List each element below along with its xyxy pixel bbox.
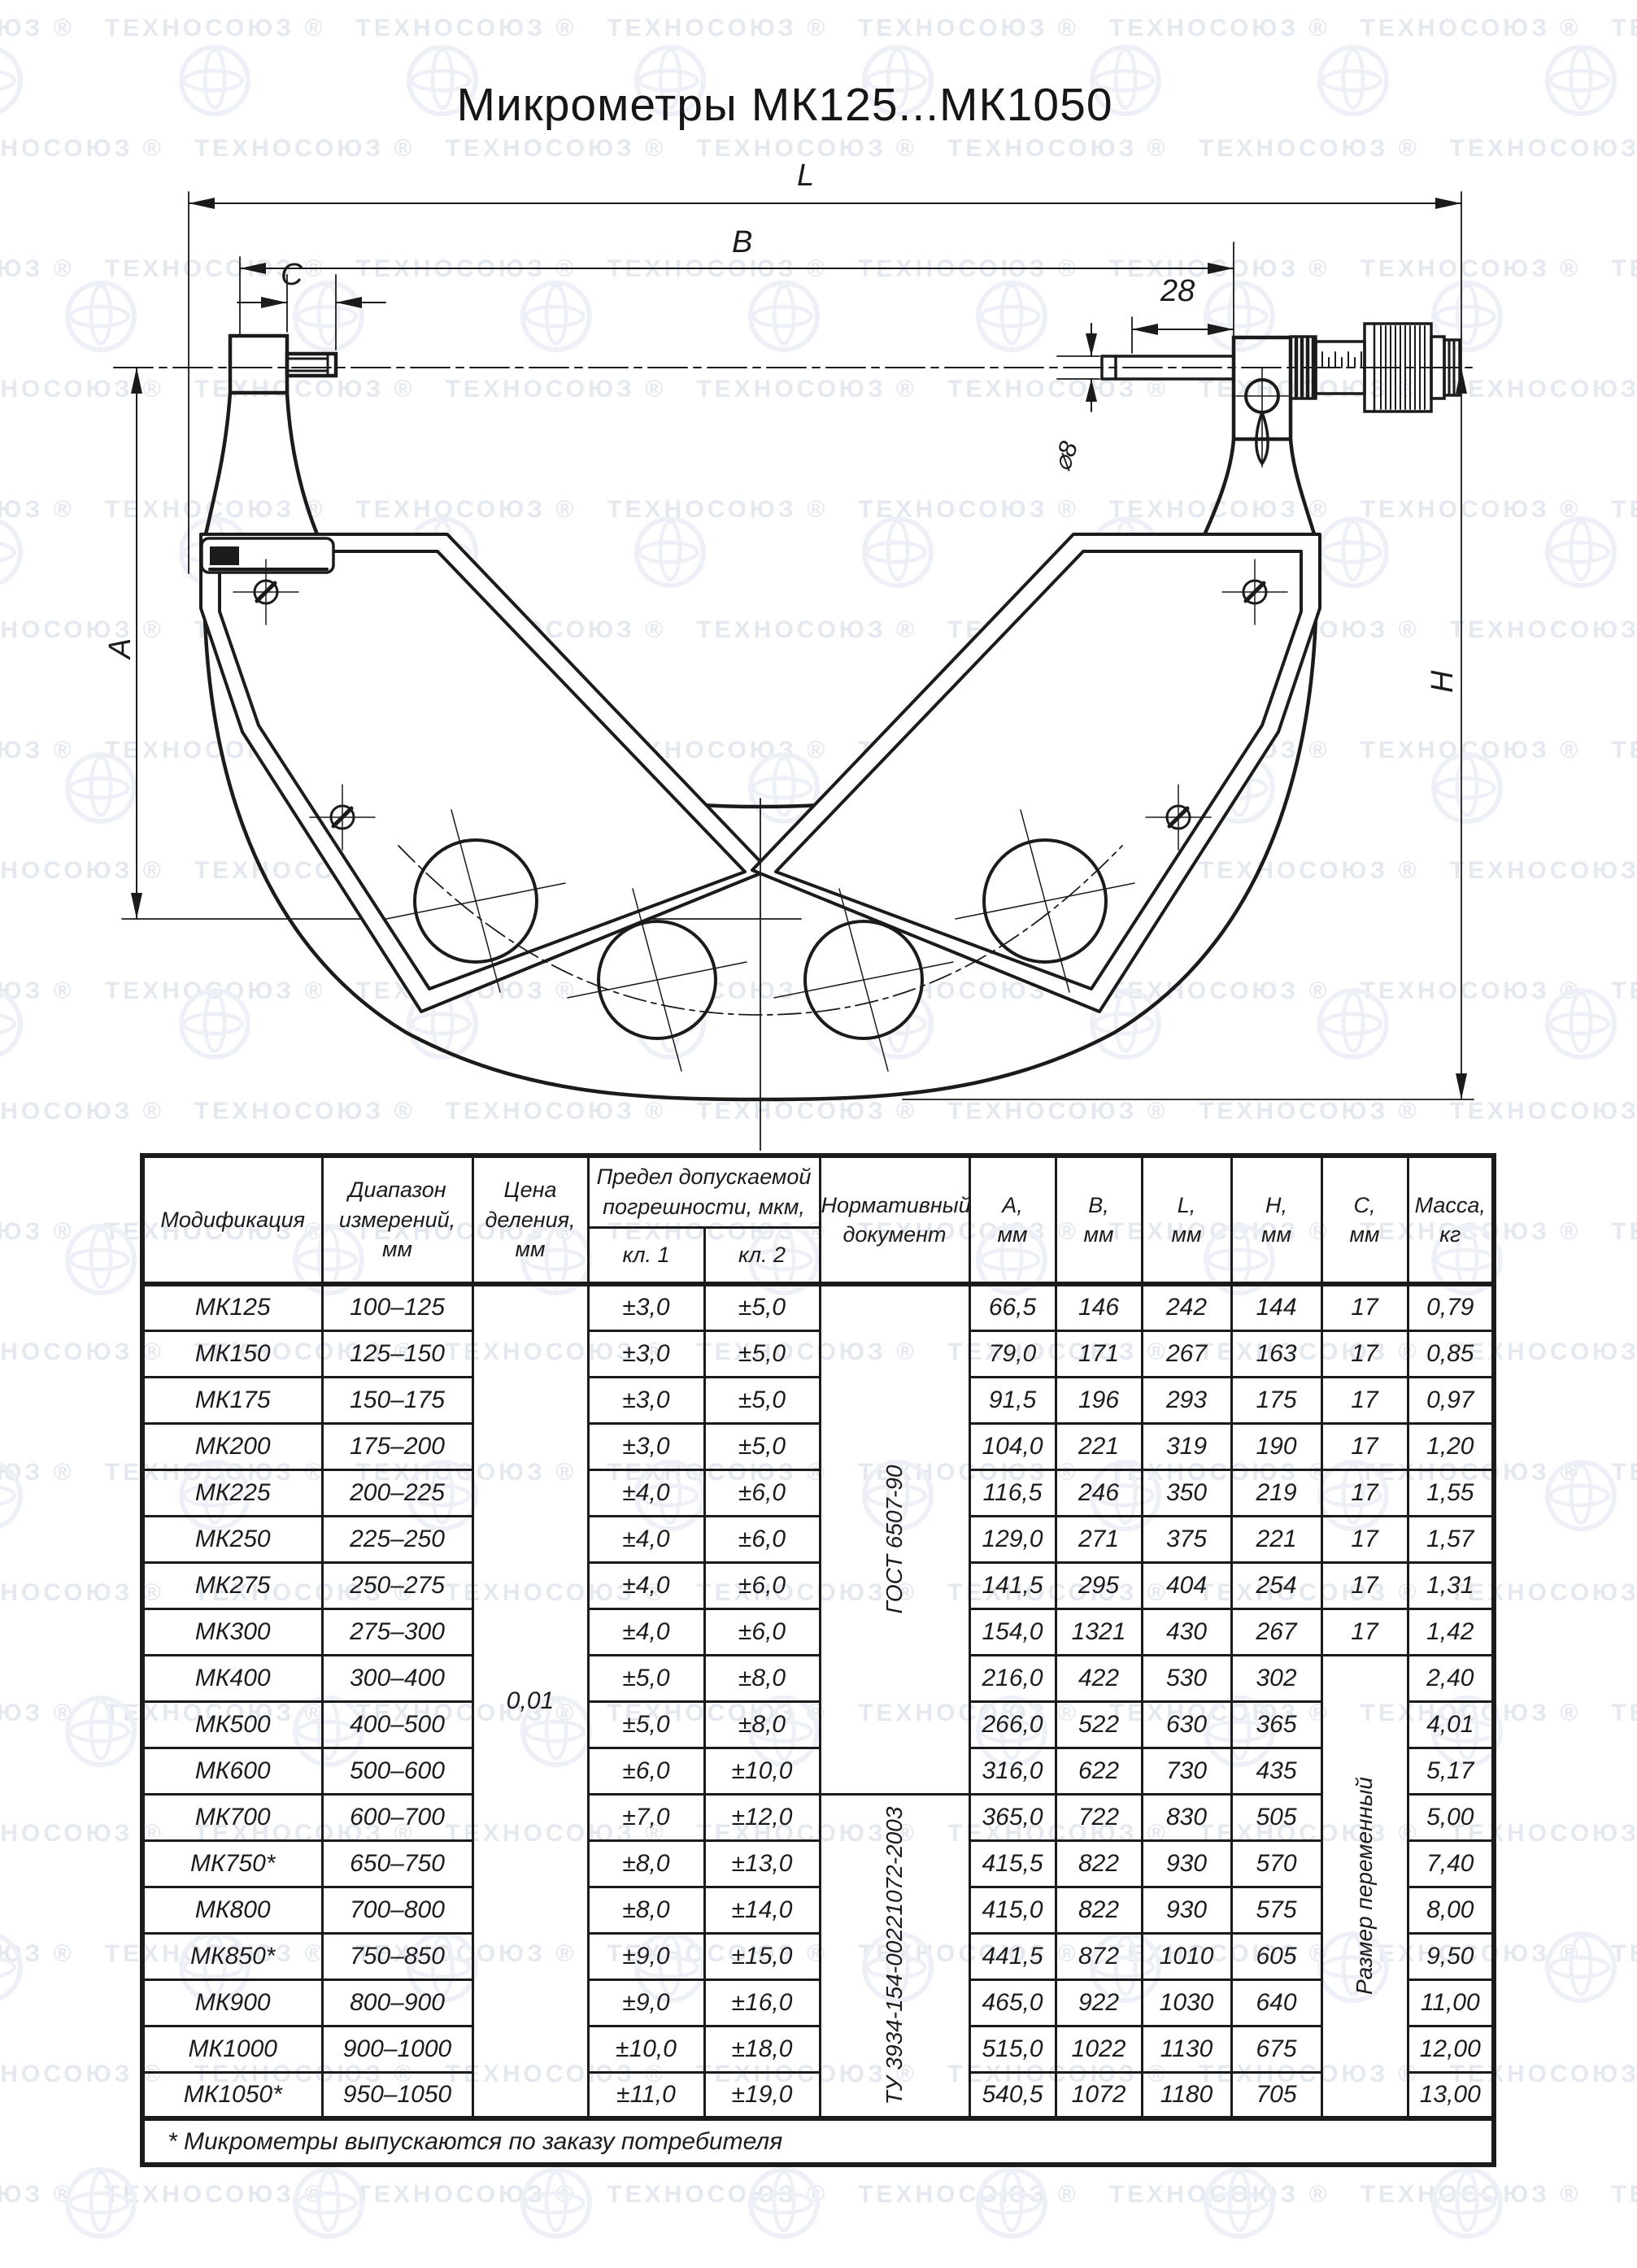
cell-range: 400–500 (322, 1701, 472, 1748)
cell-class1: ±7,0 (588, 1794, 704, 1840)
cell-L: 242 (1142, 1284, 1231, 1330)
cell-class1: ±5,0 (588, 1701, 704, 1748)
cell-H: 640 (1231, 1979, 1321, 2026)
table-row: МК1000900–1000±10,0±18,0515,010221130675… (142, 2026, 1494, 2072)
cell-mass: 1,57 (1408, 1516, 1494, 1562)
header-C: С,мм (1321, 1156, 1408, 1284)
cell-H: 254 (1231, 1562, 1321, 1608)
cell-mass: 5,17 (1408, 1748, 1494, 1794)
cell-L: 293 (1142, 1377, 1231, 1423)
cell-B: 246 (1056, 1469, 1142, 1516)
cell-range: 250–275 (322, 1562, 472, 1608)
cell-B: 1022 (1056, 2026, 1142, 2072)
cell-class1: ±6,0 (588, 1748, 704, 1794)
anvil-block (230, 336, 287, 393)
table-row: МК275250–275±4,0±6,0141,5295404254171,31 (142, 1562, 1494, 1608)
cell-range: 650–750 (322, 1840, 472, 1887)
cell-H: 163 (1231, 1330, 1321, 1377)
cell-C: 17 (1321, 1608, 1408, 1655)
cell-C: 17 (1321, 1562, 1408, 1608)
cell-A: 316,0 (969, 1748, 1056, 1794)
cell-L: 730 (1142, 1748, 1231, 1794)
cell-A: 79,0 (969, 1330, 1056, 1377)
cell-range: 150–175 (322, 1377, 472, 1423)
cell-mass: 0,79 (1408, 1284, 1494, 1330)
cell-A: 365,0 (969, 1794, 1056, 1840)
cell-model: МК400 (142, 1655, 322, 1701)
table-row: МК850*750–850±9,0±15,0441,587210106059,5… (142, 1933, 1494, 1979)
dim-label-28: 28 (1160, 274, 1195, 308)
dim-label-H: H (1426, 670, 1460, 693)
cell-model: МК1050* (142, 2072, 322, 2118)
cell-H: 267 (1231, 1608, 1321, 1655)
cell-B: 271 (1056, 1516, 1142, 1562)
cell-mass: 13,00 (1408, 2072, 1494, 2118)
cell-A: 129,0 (969, 1516, 1056, 1562)
watermark-globe-icon (65, 2167, 137, 2239)
cell-A: 415,0 (969, 1887, 1056, 1933)
micrometer-head (1236, 324, 1460, 467)
cell-L: 1130 (1142, 2026, 1231, 2072)
cell-class1: ±4,0 (588, 1469, 704, 1516)
cell-range: 600–700 (322, 1794, 472, 1840)
cell-model: МК300 (142, 1608, 322, 1655)
table-footnote: * Микрометры выпускаются по заказу потре… (142, 2118, 1494, 2165)
cell-L: 1010 (1142, 1933, 1231, 1979)
brand-plate (202, 538, 333, 572)
cell-range: 800–900 (322, 1979, 472, 2026)
cell-B: 146 (1056, 1284, 1142, 1330)
table-row: МК300275–300±4,0±6,0154,01321430267171,4… (142, 1608, 1494, 1655)
cell-range: 300–400 (322, 1655, 472, 1701)
cell-B: 722 (1056, 1794, 1142, 1840)
cell-mass: 9,50 (1408, 1933, 1494, 1979)
cell-A: 465,0 (969, 1979, 1056, 2026)
cell-mass: 2,40 (1408, 1655, 1494, 1701)
table-row: МК175150–175±3,0±5,091,5196293175170,97 (142, 1377, 1494, 1423)
cell-L: 830 (1142, 1794, 1231, 1840)
cell-mass: 1,31 (1408, 1562, 1494, 1608)
cell-model: МК900 (142, 1979, 322, 2026)
cell-class1: ±8,0 (588, 1840, 704, 1887)
table-row: МК1050*950–1050±11,0±19,0540,51072118070… (142, 2072, 1494, 2118)
watermark-globe-icon (65, 1224, 137, 1295)
cell-class2: ±6,0 (704, 1469, 820, 1516)
cell-class2: ±6,0 (704, 1608, 820, 1655)
header-B: В,мм (1056, 1156, 1142, 1284)
header-range: Диапазонизмерений,мм (322, 1156, 472, 1284)
cell-model: МК850* (142, 1933, 322, 1979)
watermark-globe-icon (293, 2167, 364, 2239)
cell-document-tu: ТУ 3934-154-00221072-2003 (820, 1794, 969, 2118)
watermark-globe-icon (1545, 1460, 1617, 1531)
watermark-globe-icon (520, 2167, 592, 2239)
cell-A: 441,5 (969, 1933, 1056, 1979)
cell-model: МК800 (142, 1887, 322, 1933)
cell-class2: ±6,0 (704, 1562, 820, 1608)
cell-class1: ±3,0 (588, 1284, 704, 1330)
cell-model: МК175 (142, 1377, 322, 1423)
cell-L: 375 (1142, 1516, 1231, 1562)
cell-H: 190 (1231, 1423, 1321, 1469)
cell-mass: 7,40 (1408, 1840, 1494, 1887)
cell-C: 17 (1321, 1516, 1408, 1562)
cell-H: 221 (1231, 1516, 1321, 1562)
header-document: Нормативныйдокумент (820, 1156, 969, 1284)
cell-class2: ±15,0 (704, 1933, 820, 1979)
watermark-globe-icon (976, 2167, 1047, 2239)
cell-B: 221 (1056, 1423, 1142, 1469)
cell-A: 266,0 (969, 1701, 1056, 1748)
cell-range: 900–1000 (322, 2026, 472, 2072)
table-row: МК150125–150±3,0±5,079,0171267163170,85 (142, 1330, 1494, 1377)
cell-B: 422 (1056, 1655, 1142, 1701)
cell-class1: ±3,0 (588, 1377, 704, 1423)
table-row: МК750*650–750±8,0±13,0415,58229305707,40 (142, 1840, 1494, 1887)
cell-model: МК275 (142, 1562, 322, 1608)
cell-H: 365 (1231, 1701, 1321, 1748)
cell-B: 1321 (1056, 1608, 1142, 1655)
cell-class2: ±5,0 (704, 1284, 820, 1330)
header-H: Н,мм (1231, 1156, 1321, 1284)
dim-label-A: A (103, 638, 137, 660)
cell-A: 141,5 (969, 1562, 1056, 1608)
cell-A: 66,5 (969, 1284, 1056, 1330)
cell-class2: ±6,0 (704, 1516, 820, 1562)
cell-B: 295 (1056, 1562, 1142, 1608)
header-modification: Модификация (142, 1156, 322, 1284)
dim-label-L: L (797, 159, 814, 193)
cell-H: 575 (1231, 1887, 1321, 1933)
cell-class1: ±3,0 (588, 1423, 704, 1469)
cell-mass: 1,20 (1408, 1423, 1494, 1469)
cell-A: 216,0 (969, 1655, 1056, 1701)
technical-drawing: L B C 28 ⌀8 A H (0, 0, 1637, 1151)
cell-model: МК1000 (142, 2026, 322, 2072)
table-row: МК400300–400±5,0±8,0216,0422530302Размер… (142, 1655, 1494, 1701)
cell-A: 415,5 (969, 1840, 1056, 1887)
watermark-globe-icon (748, 2167, 820, 2239)
cell-L: 267 (1142, 1330, 1231, 1377)
cell-class1: ±9,0 (588, 1933, 704, 1979)
cell-range: 200–225 (322, 1469, 472, 1516)
footnote-row: * Микрометры выпускаются по заказу потре… (142, 2118, 1494, 2165)
header-L: L,мм (1142, 1156, 1231, 1284)
cell-model: МК250 (142, 1516, 322, 1562)
cell-H: 675 (1231, 2026, 1321, 2072)
locking-lever (1236, 368, 1288, 467)
cell-L: 930 (1142, 1840, 1231, 1887)
cell-B: 522 (1056, 1701, 1142, 1748)
cell-class1: ±9,0 (588, 1979, 704, 2026)
table-row: МК200175–200±3,0±5,0104,0221319190171,20 (142, 1423, 1494, 1469)
table-row: МК125100–1250,01±3,0±5,0ГОСТ 6507-9066,5… (142, 1284, 1494, 1330)
watermark-globe-icon (0, 1460, 23, 1531)
cell-class1: ±3,0 (588, 1330, 704, 1377)
cell-class2: ±5,0 (704, 1330, 820, 1377)
cell-mass: 11,00 (1408, 1979, 1494, 2026)
cell-mass: 12,00 (1408, 2026, 1494, 2072)
cell-model: МК600 (142, 1748, 322, 1794)
page-title: Микрометры МК125...МК1050 (0, 78, 1570, 132)
cell-division-merged: 0,01 (472, 1284, 588, 2118)
cell-L: 350 (1142, 1469, 1231, 1516)
cell-model: МК125 (142, 1284, 322, 1330)
header-class1: кл. 1 (588, 1227, 704, 1284)
cell-range: 100–125 (322, 1284, 472, 1330)
cell-L: 1180 (1142, 2072, 1231, 2118)
cell-A: 540,5 (969, 2072, 1056, 2118)
header-division: Ценаделения,мм (472, 1156, 588, 1284)
cell-H: 175 (1231, 1377, 1321, 1423)
cell-mass: 0,97 (1408, 1377, 1494, 1423)
cell-L: 319 (1142, 1423, 1231, 1469)
header-error-limit: Предел допускаемойпогрешности, мкм, (588, 1156, 820, 1227)
cell-range: 700–800 (322, 1887, 472, 1933)
cell-range: 275–300 (322, 1608, 472, 1655)
cell-A: 104,0 (969, 1423, 1056, 1469)
cell-C: 17 (1321, 1284, 1408, 1330)
cell-class2: ±13,0 (704, 1840, 820, 1887)
cell-H: 219 (1231, 1469, 1321, 1516)
table-row: МК900800–900±9,0±16,0465,0922103064011,0… (142, 1979, 1494, 2026)
header-mass: Масса,кг (1408, 1156, 1494, 1284)
cell-C: 17 (1321, 1423, 1408, 1469)
cell-B: 171 (1056, 1330, 1142, 1377)
cell-H: 505 (1231, 1794, 1321, 1840)
cell-H: 570 (1231, 1840, 1321, 1887)
cell-B: 196 (1056, 1377, 1142, 1423)
cell-class1: ±5,0 (588, 1655, 704, 1701)
cell-class1: ±4,0 (588, 1562, 704, 1608)
cell-model: МК225 (142, 1469, 322, 1516)
cell-L: 530 (1142, 1655, 1231, 1701)
spec-table-body: МК125100–1250,01±3,0±5,0ГОСТ 6507-9066,5… (142, 1284, 1494, 2118)
cell-mass: 5,00 (1408, 1794, 1494, 1840)
table-row: МК225200–225±4,0±6,0116,5246350219171,55 (142, 1469, 1494, 1516)
cell-model: МК500 (142, 1701, 322, 1748)
cell-B: 822 (1056, 1887, 1142, 1933)
cell-class2: ±5,0 (704, 1377, 820, 1423)
cell-class2: ±16,0 (704, 1979, 820, 2026)
cell-mass: 4,01 (1408, 1701, 1494, 1748)
cell-class1: ±4,0 (588, 1608, 704, 1655)
cell-L: 1030 (1142, 1979, 1231, 2026)
brand-logo (210, 546, 239, 565)
cell-A: 154,0 (969, 1608, 1056, 1655)
table-row: МК700600–700±7,0±12,0ТУ 3934-154-0022107… (142, 1794, 1494, 1840)
cell-range: 750–850 (322, 1933, 472, 1979)
cell-A: 515,0 (969, 2026, 1056, 2072)
cell-H: 605 (1231, 1933, 1321, 1979)
cell-class2: ±18,0 (704, 2026, 820, 2072)
cell-H: 705 (1231, 2072, 1321, 2118)
table-row: МК250225–250±4,0±6,0129,0271375221171,57 (142, 1516, 1494, 1562)
cell-B: 622 (1056, 1748, 1142, 1794)
watermark-globe-icon (1204, 2167, 1275, 2239)
watermark-globe-icon (65, 1696, 137, 1767)
cell-class2: ±8,0 (704, 1655, 820, 1701)
table-row: МК500400–500±5,0±8,0266,05226303654,01 (142, 1701, 1494, 1748)
cell-range: 125–150 (322, 1330, 472, 1377)
cell-mass: 0,85 (1408, 1330, 1494, 1377)
watermark-globe-icon (1431, 2167, 1503, 2239)
cell-A: 91,5 (969, 1377, 1056, 1423)
cell-H: 144 (1231, 1284, 1321, 1330)
dim-label-B: B (732, 225, 752, 259)
cell-B: 822 (1056, 1840, 1142, 1887)
cell-B: 1072 (1056, 2072, 1142, 2118)
spec-table-wrap: Модификация Диапазонизмерений,мм Ценадел… (140, 1153, 1496, 2167)
cell-mass: 8,00 (1408, 1887, 1494, 1933)
cell-document-gost: ГОСТ 6507-90 (820, 1284, 969, 1794)
watermark-globe-icon (1545, 1931, 1617, 2003)
cell-class1: ±4,0 (588, 1516, 704, 1562)
cell-class2: ±19,0 (704, 2072, 820, 2118)
cell-model: МК150 (142, 1330, 322, 1377)
cell-class1: ±8,0 (588, 1887, 704, 1933)
cell-class2: ±8,0 (704, 1701, 820, 1748)
cell-B: 872 (1056, 1933, 1142, 1979)
cell-range: 950–1050 (322, 2072, 472, 2118)
dim-label-C: C (281, 258, 303, 292)
cell-A: 116,5 (969, 1469, 1056, 1516)
cell-model: МК200 (142, 1423, 322, 1469)
cell-H: 302 (1231, 1655, 1321, 1701)
cell-C: 17 (1321, 1469, 1408, 1516)
cell-class1: ±11,0 (588, 2072, 704, 2118)
header-class2: кл. 2 (704, 1227, 820, 1284)
cell-L: 430 (1142, 1608, 1231, 1655)
catalog-page: ТЕХНОСОЮЗ ® ТЕХНОСОЮЗ ® ТЕХНОСОЮЗ ® ТЕХН… (0, 0, 1637, 2268)
cell-L: 404 (1142, 1562, 1231, 1608)
cell-range: 175–200 (322, 1423, 472, 1469)
cell-class1: ±10,0 (588, 2026, 704, 2072)
watermark-text: ТЕХНОСОЮЗ ® ТЕХНОСОЮЗ ® ТЕХНОСОЮЗ ® ТЕХН… (0, 2181, 1637, 2209)
cell-B: 922 (1056, 1979, 1142, 2026)
cell-class2: ±14,0 (704, 1887, 820, 1933)
cell-range: 500–600 (322, 1748, 472, 1794)
watermark-globe-icon (0, 1931, 23, 2003)
cell-model: МК750* (142, 1840, 322, 1887)
cell-class2: ±10,0 (704, 1748, 820, 1794)
spec-table: Модификация Диапазонизмерений,мм Ценадел… (140, 1153, 1496, 2167)
table-row: МК600500–600±6,0±10,0316,06227304355,17 (142, 1748, 1494, 1794)
cell-C: 17 (1321, 1377, 1408, 1423)
cell-model: МК700 (142, 1794, 322, 1840)
cell-C: 17 (1321, 1330, 1408, 1377)
dim-label-d8: ⌀8 (1047, 437, 1084, 475)
header-A: А,мм (969, 1156, 1056, 1284)
cell-class2: ±5,0 (704, 1423, 820, 1469)
cell-L: 630 (1142, 1701, 1231, 1748)
cell-L: 930 (1142, 1887, 1231, 1933)
cell-class2: ±12,0 (704, 1794, 820, 1840)
cell-range: 225–250 (322, 1516, 472, 1562)
cell-C-variable: Размер переменный (1321, 1655, 1408, 2118)
table-row: МК800700–800±8,0±14,0415,08229305758,00 (142, 1887, 1494, 1933)
cell-mass: 1,55 (1408, 1469, 1494, 1516)
cell-H: 435 (1231, 1748, 1321, 1794)
cell-mass: 1,42 (1408, 1608, 1494, 1655)
